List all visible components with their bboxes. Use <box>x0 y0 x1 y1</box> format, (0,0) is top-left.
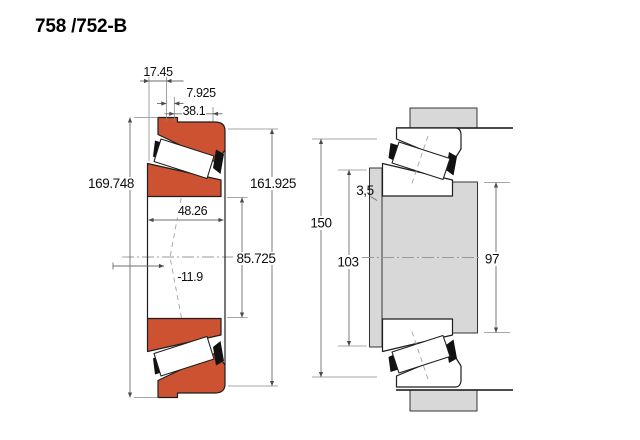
dim-flange-width: 17.45 <box>140 65 184 81</box>
dim-label-minus-11-9: -11.9 <box>177 270 203 284</box>
catalog-drawing-page: 17.45 7.925 38.1 169.748 161.925 <box>0 0 640 440</box>
dim-housing-shoulder: 150 <box>307 139 335 377</box>
dim-flange-diameter: 169.748 <box>84 118 137 398</box>
bearing-drawing: 17.45 7.925 38.1 169.748 161.925 <box>0 0 640 440</box>
dim-label-161-925: 161.925 <box>250 176 296 191</box>
dim-label-38-1: 38.1 <box>183 104 206 118</box>
dim-cup-width: 38.1 <box>165 104 223 118</box>
dim-load-center: -11.9 <box>113 263 203 285</box>
dim-backing-shoulder: 97 <box>482 183 503 333</box>
housing-bottom-section <box>410 390 477 411</box>
right-view-mounting: 150 103 97 3,5 <box>307 108 513 411</box>
housing-top-section <box>410 108 477 128</box>
dim-label-85-725: 85.725 <box>237 251 276 266</box>
dim-label-169-748: 169.748 <box>88 176 134 191</box>
dim-flange-step: 7.925 <box>157 86 216 104</box>
dim-label-7-925: 7.925 <box>186 86 216 100</box>
dim-label-17-45: 17.45 <box>143 65 173 79</box>
dim-cone-width: 48.26 <box>149 204 224 220</box>
page-title: 758 /752-B <box>35 16 127 37</box>
left-view-cross-section: 17.45 7.925 38.1 169.748 161.925 <box>84 65 300 398</box>
dim-label-48-26: 48.26 <box>178 204 208 218</box>
dim-label-150: 150 <box>310 216 331 231</box>
dim-label-3-5: 3,5 <box>356 183 374 198</box>
dim-label-103: 103 <box>337 255 358 270</box>
dim-label-97: 97 <box>485 252 499 267</box>
